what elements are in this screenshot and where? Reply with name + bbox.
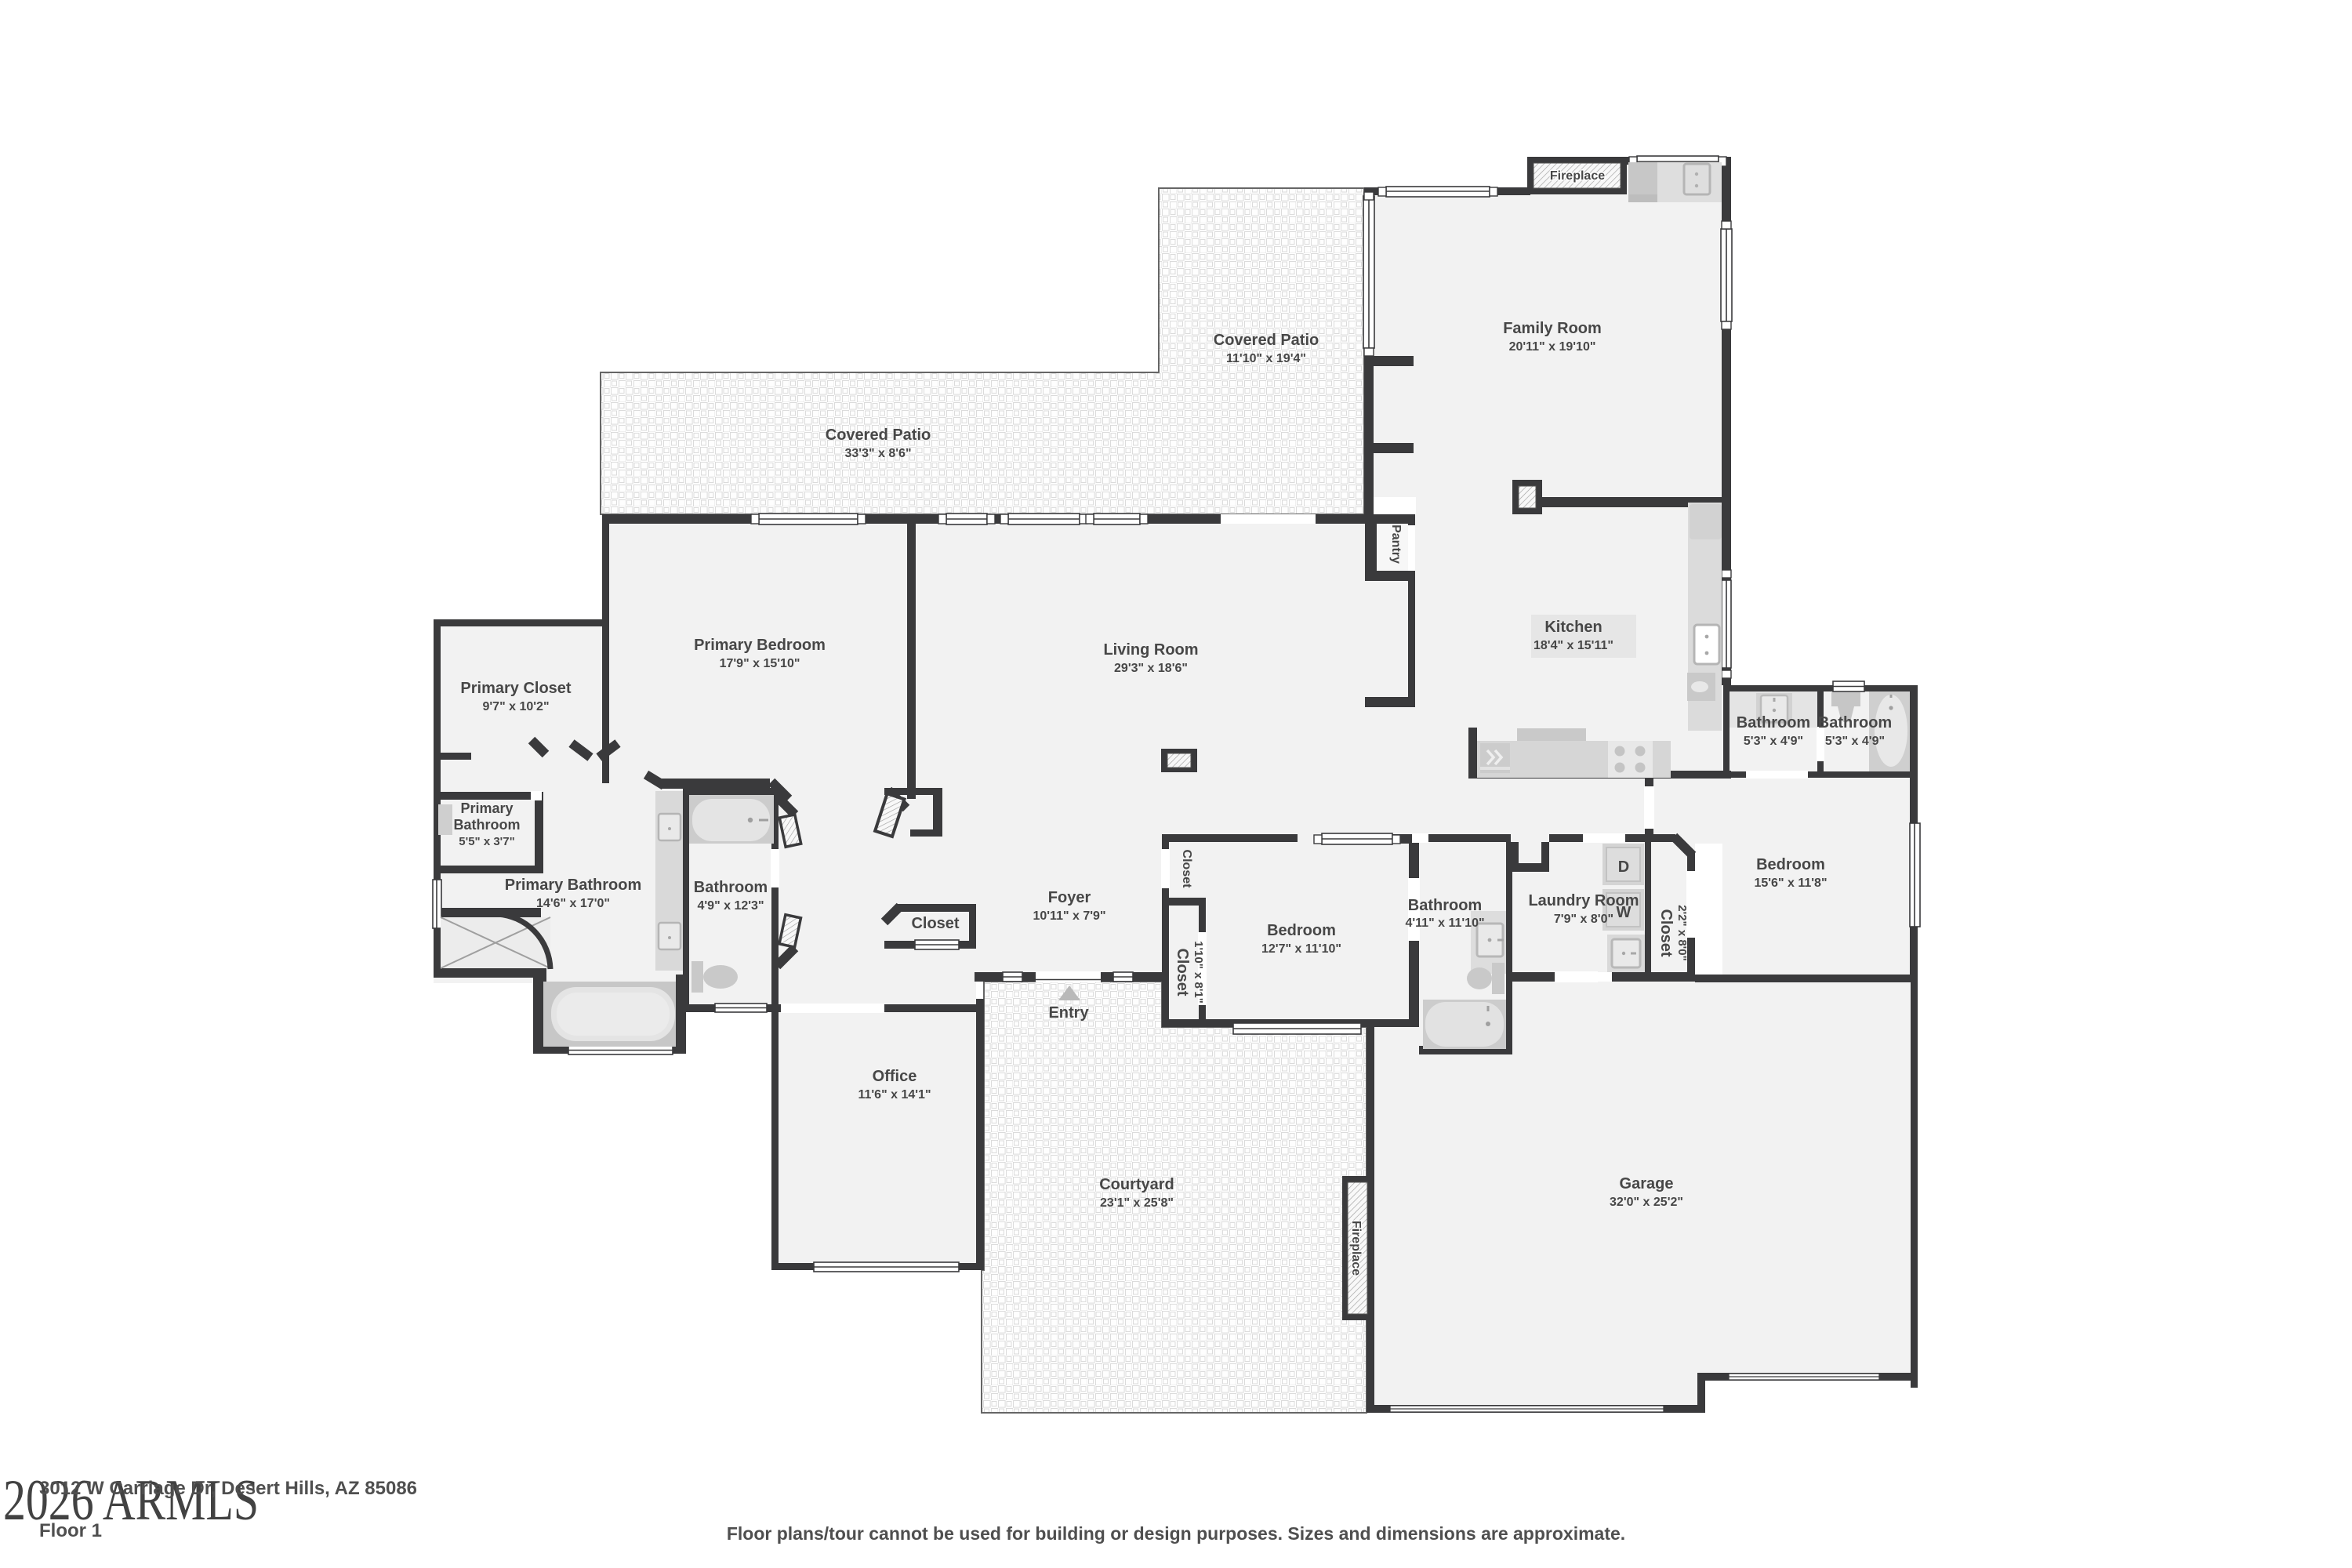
svg-text:5'3" x 4'9": 5'3" x 4'9"	[1744, 735, 1803, 748]
svg-text:Entry: Entry	[1048, 1004, 1089, 1022]
svg-text:Pantry: Pantry	[1389, 524, 1403, 564]
svg-text:10'11" x 7'9": 10'11" x 7'9"	[1033, 909, 1105, 923]
svg-text:32'0" x 25'2": 32'0" x 25'2"	[1610, 1196, 1683, 1209]
svg-text:11'10" x 19'4": 11'10" x 19'4"	[1226, 352, 1306, 365]
svg-text:Courtyard: Courtyard	[1099, 1176, 1174, 1193]
svg-text:Primary Bedroom: Primary Bedroom	[694, 637, 826, 654]
svg-text:18'4" x 15'11": 18'4" x 15'11"	[1534, 639, 1613, 652]
svg-text:Office: Office	[873, 1068, 917, 1085]
svg-text:15'6" x 11'8": 15'6" x 11'8"	[1754, 877, 1827, 890]
svg-text:Primary Bathroom: Primary Bathroom	[505, 877, 642, 894]
svg-text:17'9" x 15'10": 17'9" x 15'10"	[720, 657, 800, 670]
svg-text:Fireplace: Fireplace	[1550, 169, 1605, 183]
svg-text:11'6" x 14'1": 11'6" x 14'1"	[858, 1088, 931, 1102]
svg-text:Bathroom: Bathroom	[1408, 897, 1482, 914]
svg-text:Covered Patio: Covered Patio	[826, 426, 931, 444]
svg-text:Family Room: Family Room	[1503, 320, 1602, 337]
svg-text:Bedroom: Bedroom	[1756, 856, 1825, 873]
svg-text:Primary: Primary	[460, 800, 513, 816]
svg-text:2'2" x 8'0": 2'2" x 8'0"	[1675, 905, 1689, 960]
svg-text:7'9" x 8'0": 7'9" x 8'0"	[1554, 913, 1613, 926]
svg-text:Laundry Room: Laundry Room	[1528, 892, 1639, 909]
svg-text:1'10" x 8'1": 1'10" x 8'1"	[1192, 941, 1205, 1004]
svg-text:Bathroom: Bathroom	[694, 879, 768, 896]
svg-text:20'11" x 19'10": 20'11" x 19'10"	[1509, 340, 1596, 354]
svg-text:Fireplace: Fireplace	[1349, 1221, 1363, 1276]
svg-text:4'11" x 11'10": 4'11" x 11'10"	[1405, 916, 1484, 930]
svg-text:Closet: Closet	[1180, 850, 1193, 889]
svg-text:12'7" x 11'10": 12'7" x 11'10"	[1261, 942, 1341, 956]
svg-text:Kitchen: Kitchen	[1544, 619, 1602, 636]
svg-text:Bathroom: Bathroom	[1818, 714, 1892, 731]
svg-text:D: D	[1618, 858, 1629, 876]
svg-text:Floor 1: Floor 1	[39, 1520, 102, 1541]
svg-text:Closet: Closet	[911, 915, 959, 932]
svg-text:Primary Closet: Primary Closet	[460, 680, 572, 697]
svg-text:Bedroom: Bedroom	[1267, 922, 1336, 939]
svg-text:Floor plans/tour cannot be use: Floor plans/tour cannot be used for buil…	[727, 1523, 1625, 1544]
svg-text:3012 W Carriage Dr, Desert Hil: 3012 W Carriage Dr, Desert Hills, AZ 850…	[39, 1478, 417, 1499]
svg-text:Closet: Closet	[1174, 948, 1191, 996]
svg-text:29'3" x 18'6": 29'3" x 18'6"	[1114, 662, 1188, 675]
svg-text:14'6" x 17'0": 14'6" x 17'0"	[536, 897, 610, 910]
svg-text:23'1" x 25'8": 23'1" x 25'8"	[1100, 1196, 1174, 1210]
svg-text:Living Room: Living Room	[1103, 641, 1198, 659]
svg-text:Garage: Garage	[1620, 1175, 1674, 1192]
svg-text:9'7" x 10'2": 9'7" x 10'2"	[482, 700, 549, 713]
svg-text:5'5" x 3'7": 5'5" x 3'7"	[459, 835, 514, 848]
svg-text:33'3" x 8'6": 33'3" x 8'6"	[844, 447, 911, 460]
svg-text:Closet: Closet	[1657, 909, 1675, 956]
svg-text:Foyer: Foyer	[1048, 889, 1091, 906]
svg-text:5'3" x 4'9": 5'3" x 4'9"	[1825, 735, 1885, 748]
svg-text:Bathroom: Bathroom	[454, 817, 521, 833]
svg-text:4'9" x 12'3": 4'9" x 12'3"	[697, 899, 764, 913]
svg-text:Bathroom: Bathroom	[1737, 714, 1810, 731]
svg-text:Covered Patio: Covered Patio	[1214, 332, 1319, 349]
